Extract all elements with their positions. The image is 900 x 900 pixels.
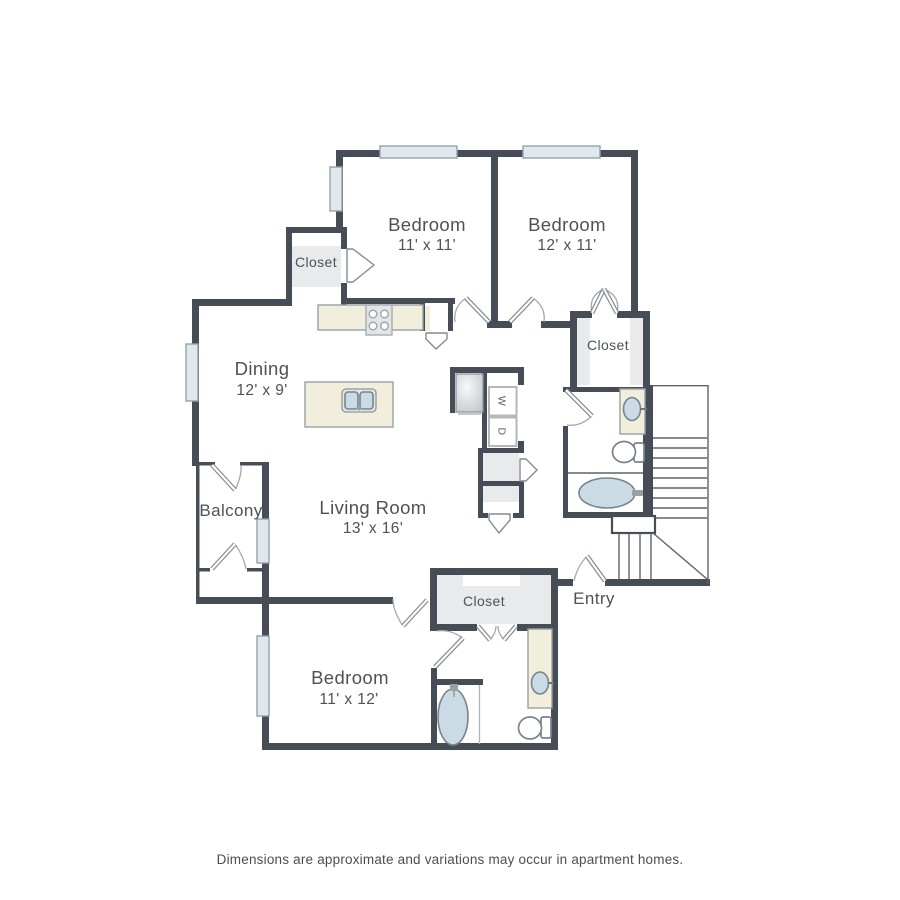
window-bedroom2-top xyxy=(523,146,600,158)
door-balcony-top xyxy=(212,465,241,490)
door-balcony-bottom xyxy=(212,544,246,569)
living-dims: 13' x 16' xyxy=(343,520,403,537)
closet-bottom-label: Closet xyxy=(463,593,505,609)
toilet-second xyxy=(519,717,552,739)
door-closet-right xyxy=(591,289,618,313)
door-bathroom-main xyxy=(566,390,592,425)
window-balcony xyxy=(257,519,269,563)
kitchen-island xyxy=(305,382,393,427)
sink-main xyxy=(624,398,641,421)
window-dining-left xyxy=(186,344,198,401)
door-bedroom2 xyxy=(510,298,544,322)
living-label: Living Room xyxy=(319,497,426,518)
dining-label: Dining xyxy=(235,358,290,379)
floorplan-drawing: W D xyxy=(0,0,900,900)
linen-closets-interior xyxy=(483,453,519,502)
washer: W xyxy=(489,387,517,416)
bedroom3-label: Bedroom xyxy=(311,667,389,688)
door-closet-top-left xyxy=(347,249,374,282)
pantry-door xyxy=(426,333,447,349)
balcony-label: Balcony xyxy=(199,501,262,520)
floorplan-page: W D xyxy=(0,0,900,900)
bedroom1-label: Bedroom xyxy=(388,214,466,235)
door-linen-1 xyxy=(520,459,537,481)
bedroom3-dims: 11' x 12' xyxy=(319,691,378,708)
bathtub-main xyxy=(579,478,643,508)
door-bedroom1 xyxy=(455,298,489,322)
disclaimer-text: Dimensions are approximate and variation… xyxy=(0,852,900,867)
door-linen-2 xyxy=(489,514,510,533)
door-bedroom3 xyxy=(393,599,427,626)
kitchen-cabinet xyxy=(425,303,448,349)
stove xyxy=(366,305,392,335)
dining-dims: 12' x 9' xyxy=(236,382,287,399)
door-closet-bottom xyxy=(478,626,516,640)
closet-top-left-label: Closet xyxy=(295,254,337,270)
window-bedroom1-top xyxy=(380,146,457,158)
window-bedroom3-left xyxy=(257,636,269,716)
toilet-main xyxy=(613,442,645,463)
refrigerator xyxy=(456,374,483,414)
door-entry xyxy=(574,556,605,581)
closet-right-label: Closet xyxy=(587,337,629,353)
window-bedroom1-left xyxy=(330,167,342,211)
bedroom1-dims: 11' x 11' xyxy=(398,237,456,254)
bedroom2-label: Bedroom xyxy=(528,214,606,235)
door-bathroom-second xyxy=(435,631,463,667)
vanity-second xyxy=(528,629,552,708)
entry-label: Entry xyxy=(573,589,615,608)
bedroom2-dims: 12' x 11' xyxy=(537,237,596,254)
bathtub-second xyxy=(438,684,468,745)
dryer: D xyxy=(489,418,517,447)
washer-label: W xyxy=(496,396,508,406)
stair-landing xyxy=(612,516,655,533)
dryer-label: D xyxy=(496,428,508,436)
sink-second xyxy=(532,672,549,694)
